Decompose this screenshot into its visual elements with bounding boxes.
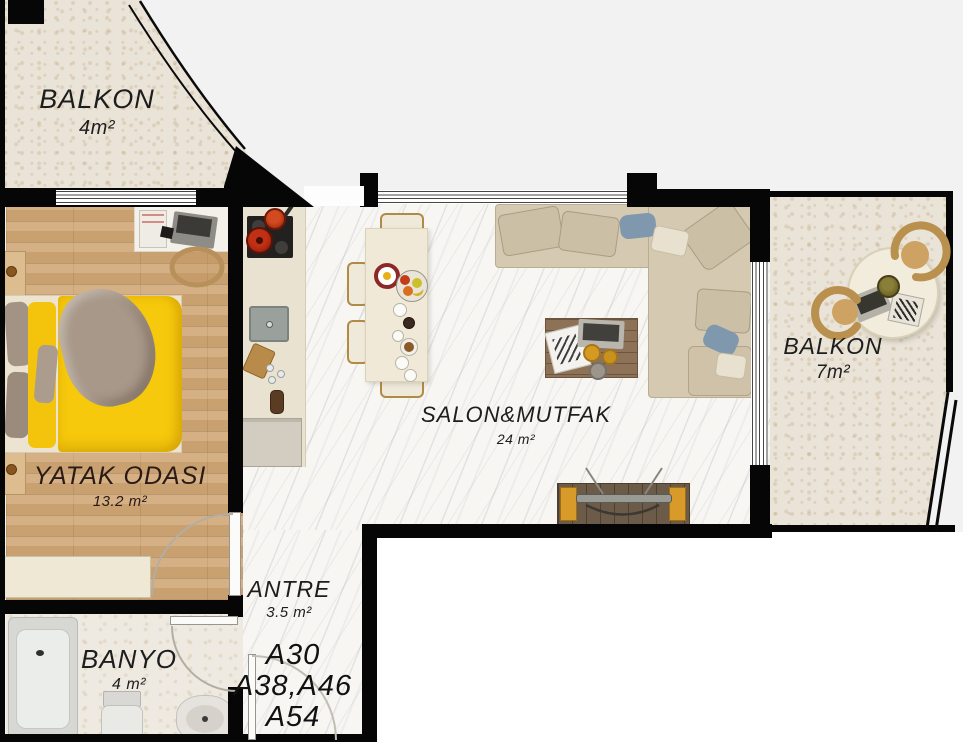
wall-balcony-right-bottom [772, 525, 955, 532]
red-pan [264, 208, 286, 230]
bottle [270, 390, 284, 414]
nightstand-knob [6, 464, 17, 475]
wall-salon-pier-right [627, 173, 657, 207]
room-label-balcony-right: BALKON 7m² [783, 333, 882, 384]
faucet-icon [266, 321, 273, 328]
room-area: 24 m² [421, 431, 611, 447]
room-area: 4 m² [81, 676, 177, 694]
room-name: SALON&MUTFAK [421, 402, 611, 428]
room-area: 13.2 m² [34, 493, 207, 510]
wall-salon-right-lower [750, 465, 770, 532]
stove-burner [275, 241, 288, 254]
room-area: 4m² [39, 117, 155, 140]
wall-bottom [0, 734, 377, 742]
pillow-cream [714, 352, 747, 380]
small-plate [395, 356, 409, 370]
small-plate [393, 303, 407, 317]
food [404, 342, 414, 352]
stool-yellow [602, 349, 618, 365]
tv-yellow-speaker [669, 487, 686, 521]
tv-yellow-speaker [560, 487, 577, 521]
room-label-living-kitchen: SALON&MUTFAK 24 m² [421, 402, 611, 447]
room-area: 7m² [783, 362, 882, 384]
pillow-blue [619, 212, 657, 240]
unit-line: A38,A46 [234, 671, 352, 702]
room-label-bedroom: YATAK ODASI 13.2 m² [34, 462, 207, 510]
wardrobe [3, 556, 151, 598]
unit-line: A30 [234, 640, 352, 671]
tv-screen [576, 494, 672, 503]
unit-numbers: A30 A38,A46 A54 [234, 640, 352, 733]
bathtub-drain [36, 650, 44, 656]
room-name: BANYO [81, 644, 177, 675]
unit-line: A54 [234, 702, 352, 733]
room-area: 3.5 m² [248, 604, 331, 621]
stool-gray [589, 362, 607, 380]
fridge [242, 418, 302, 467]
small-cup [403, 317, 415, 329]
room-label-bathroom: BANYO 4 m² [81, 644, 177, 694]
wall-bedroom-kitchen-divider [228, 200, 243, 513]
stool-yellow [583, 344, 601, 362]
book [887, 292, 924, 327]
bedroom-door-leaf [229, 512, 241, 596]
wall-bathroom-top [0, 600, 243, 614]
glass [277, 370, 285, 378]
bathtub-basin [16, 629, 70, 729]
wall-left [0, 0, 5, 742]
bathroom-door-leaf [170, 616, 238, 625]
pot-lid-knob [256, 237, 263, 244]
glass [268, 376, 276, 384]
floor-plan: BALKON 4m² YATAK ODASI 13.2 m² SALON&MUT… [0, 0, 963, 742]
room-name: BALKON [783, 333, 882, 360]
glass [266, 364, 274, 372]
wall-balcony-right-edge [946, 191, 953, 392]
room-name: BALKON [39, 84, 155, 115]
wall-corner-top-left [8, 0, 44, 24]
plant-pot [877, 275, 900, 298]
wall-salon-right-upper [750, 189, 770, 262]
exterior-white-zone [377, 532, 963, 742]
room-name: ANTRE [248, 576, 331, 603]
egg-yolk [383, 272, 391, 280]
wall-balcony-right-top [770, 191, 952, 197]
wall-hall-right [362, 524, 377, 742]
table-laptop-screen [583, 323, 620, 342]
glazing-panel [304, 186, 364, 206]
room-label-balcony-top: BALKON 4m² [39, 84, 155, 140]
window-bedroom-balcony [56, 190, 196, 205]
washbasin-drain [202, 716, 208, 722]
desk-item [160, 226, 174, 239]
room-name: YATAK ODASI [34, 462, 207, 491]
sofa-cushion [557, 210, 620, 258]
small-plate [404, 369, 417, 382]
window-salon-balcony [751, 262, 768, 465]
wall-salon-bottom [362, 524, 772, 538]
fruit [400, 275, 410, 285]
window-salon-top [378, 190, 627, 204]
room-label-hallway: ANTRE 3.5 m² [248, 576, 331, 621]
nightstand-knob [6, 266, 17, 277]
